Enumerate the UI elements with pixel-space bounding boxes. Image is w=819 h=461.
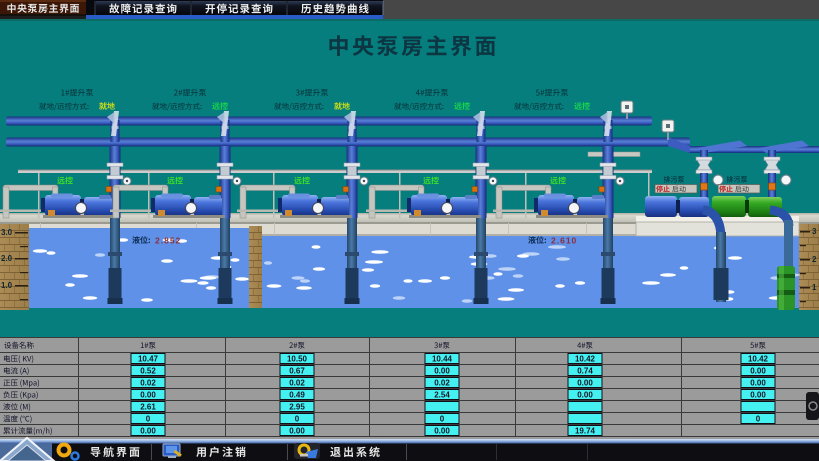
svg-text:0.49: 0.49 bbox=[289, 391, 305, 400]
svg-text:0.00: 0.00 bbox=[289, 427, 305, 436]
svg-text:0.52: 0.52 bbox=[140, 367, 156, 376]
svg-text:1: 1 bbox=[812, 283, 817, 292]
svg-text:0.67: 0.67 bbox=[289, 367, 305, 376]
svg-text:10.42: 10.42 bbox=[575, 355, 596, 364]
svg-text:0: 0 bbox=[756, 415, 761, 424]
svg-text:3.0: 3.0 bbox=[1, 228, 13, 237]
svg-text:0.74: 0.74 bbox=[577, 367, 593, 376]
svg-text:0: 0 bbox=[295, 415, 300, 424]
svg-text:0.00: 0.00 bbox=[750, 367, 766, 376]
svg-text:10.47: 10.47 bbox=[138, 355, 159, 364]
svg-text:0.00: 0.00 bbox=[577, 391, 593, 400]
svg-text:0.00: 0.00 bbox=[140, 391, 156, 400]
svg-text:10.44: 10.44 bbox=[432, 355, 453, 364]
svg-text:2.852: 2.852 bbox=[155, 236, 181, 246]
svg-text:0.00: 0.00 bbox=[140, 427, 156, 436]
svg-text:0.02: 0.02 bbox=[140, 379, 156, 388]
svg-text:0.02: 0.02 bbox=[289, 379, 305, 388]
svg-text:2: 2 bbox=[812, 255, 817, 264]
svg-text:10.42: 10.42 bbox=[748, 355, 769, 364]
svg-text:0.00: 0.00 bbox=[750, 391, 766, 400]
svg-text:2.610: 2.610 bbox=[551, 236, 577, 246]
svg-text:2.61: 2.61 bbox=[140, 403, 156, 412]
svg-text:10.50: 10.50 bbox=[287, 355, 308, 364]
svg-text:0: 0 bbox=[146, 415, 151, 424]
svg-text:3: 3 bbox=[812, 227, 817, 236]
svg-text:0.00: 0.00 bbox=[434, 427, 450, 436]
svg-text:0: 0 bbox=[440, 415, 445, 424]
svg-text:2.95: 2.95 bbox=[289, 403, 305, 412]
svg-text:0.00: 0.00 bbox=[577, 379, 593, 388]
svg-text:0.00: 0.00 bbox=[434, 367, 450, 376]
svg-text:0.00: 0.00 bbox=[750, 379, 766, 388]
svg-text:2.54: 2.54 bbox=[434, 391, 450, 400]
svg-text:0.02: 0.02 bbox=[434, 379, 450, 388]
svg-text:1.0: 1.0 bbox=[1, 281, 13, 290]
svg-text:19.74: 19.74 bbox=[575, 427, 596, 436]
svg-text:2.0: 2.0 bbox=[1, 254, 13, 263]
